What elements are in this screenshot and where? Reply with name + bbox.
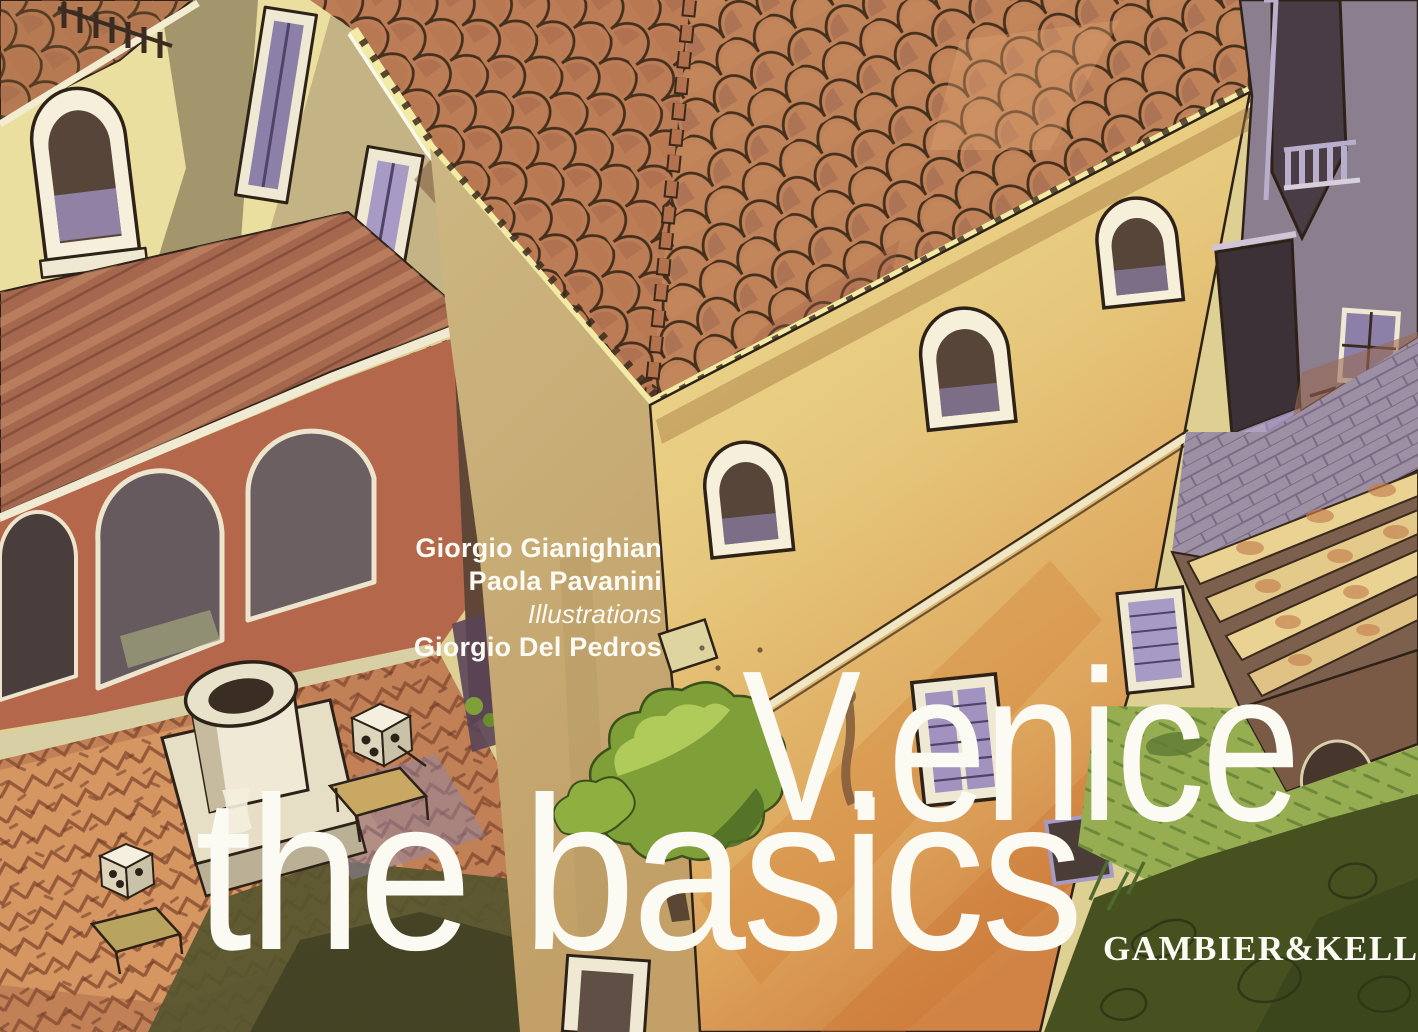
author-block: Giorgio Gianighian Paola Pavanini Illust… xyxy=(300,532,662,664)
arcade-arch-1 xyxy=(0,512,76,700)
title-line-the-basics: the basics xyxy=(195,766,1080,984)
book-cover: Giorgio Gianighian Paola Pavanini Illust… xyxy=(0,0,1418,1032)
illustrations-label: Illustrations xyxy=(300,598,662,631)
author-name-1: Giorgio Gianighian xyxy=(300,532,662,565)
publisher-logo-text: GAMBIER&KELLER xyxy=(1103,931,1418,966)
illustrator-name: Giorgio Del Pedros xyxy=(300,631,662,664)
author-name-2: Paola Pavanini xyxy=(300,565,662,598)
